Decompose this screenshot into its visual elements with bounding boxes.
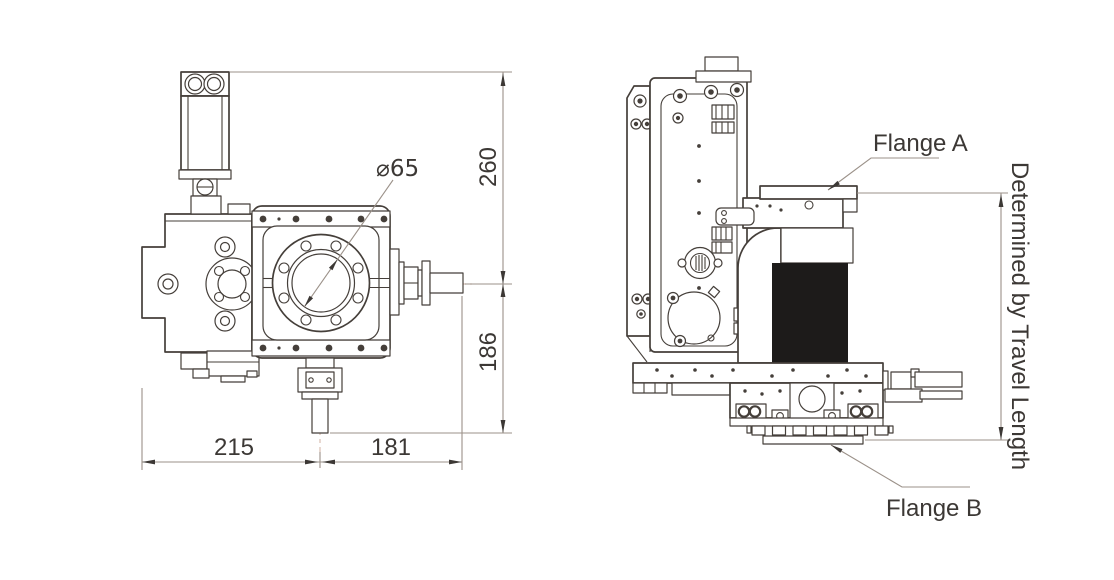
base-stage-assembly [633,363,893,444]
dim-arrow [322,460,335,465]
dim-186: 186 [475,332,502,372]
travel-length-note: Determined by Travel Length [1006,162,1033,470]
bearing [750,406,760,416]
motor-block [772,263,848,367]
bottom-shaft [298,358,342,433]
dim-arrow [501,420,506,433]
rotary-stage-plate [252,206,390,358]
technical-drawing: 260 186 215 181 ⌀65 [0,0,1114,580]
dim-arrow [142,460,155,465]
base-shaft [883,369,962,402]
dim-arrow [999,194,1004,207]
leader-arrow [831,445,843,453]
limit-switch-top [712,105,734,133]
dim-215: 215 [214,434,254,461]
side-shaft [390,249,463,315]
left-housing-block [142,214,258,352]
drawing-canvas: 260 186 215 181 ⌀65 [0,0,1114,580]
side-view-annotations: Determined by Travel Length Flange A Fla… [828,130,1033,522]
dim-arrow [449,460,462,465]
dim-arrow [305,460,318,465]
bore-label: ⌀65 [376,156,419,182]
vertical-plate-strip [627,86,653,362]
main-vertical-plate [650,57,751,352]
flange-a-label: Flange A [873,130,968,157]
flange-a-plate [760,186,857,199]
motor-mount-column [781,228,853,263]
bearing [851,406,861,416]
valve-assembly [181,351,259,382]
flange-b-label: Flange B [886,495,982,522]
dim-arrow [501,73,506,86]
dim-181: 181 [371,434,411,461]
dim-arrow [501,284,506,297]
dim-arrow [999,427,1004,440]
bearing [862,406,872,416]
dim-arrow [501,271,506,284]
dim-260: 260 [475,147,502,187]
side-view-drawing: Determined by Travel Length Flange A Fla… [627,57,1033,522]
pneumatic-cylinder [179,72,250,214]
top-connector [705,57,738,71]
limit-switch-bottom [712,227,732,253]
flange-b-plate [763,436,863,444]
bearing [739,406,749,416]
front-view-drawing: 260 186 215 181 ⌀65 [142,72,512,470]
castellated-flange [747,426,893,435]
